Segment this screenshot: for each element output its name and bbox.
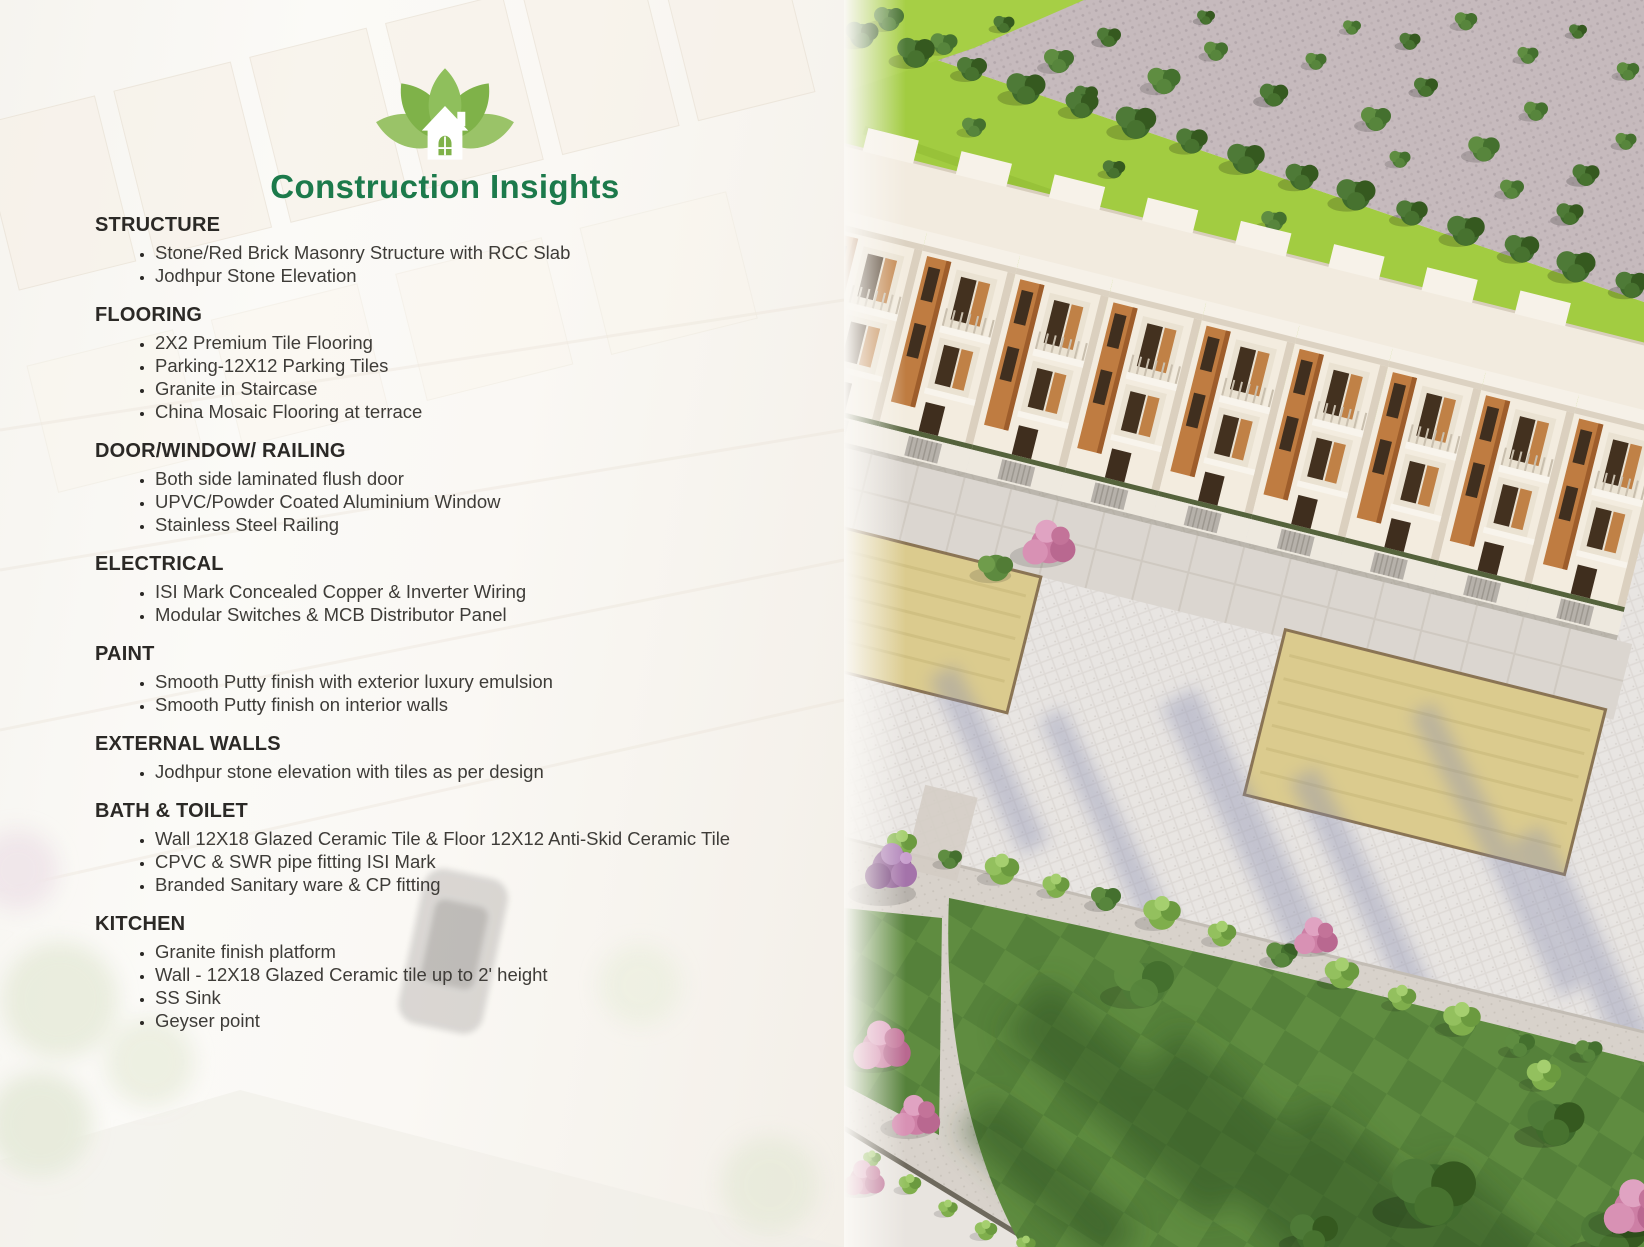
spec-item: Granite in Staircase [155, 377, 800, 400]
section-items: Stone/Red Brick Masonry Structure with R… [95, 241, 800, 287]
spec-item: Jodhpur Stone Elevation [155, 264, 800, 287]
spec-item: Granite finish platform [155, 940, 800, 963]
spec-section-kitchen: KITCHEN Granite finish platform Wall - 1… [95, 912, 800, 1032]
section-items: 2X2 Premium Tile Flooring Parking-12X12 … [95, 331, 800, 423]
specs-panel: Construction Insights STRUCTURE Stone/Re… [0, 0, 844, 1247]
leaf-house-logo-icon [347, 48, 543, 164]
spec-item: CPVC & SWR pipe fitting ISI Mark [155, 850, 800, 873]
spec-item: UPVC/Powder Coated Aluminium Window [155, 490, 800, 513]
section-title: PAINT [95, 642, 800, 666]
spec-item: Stainless Steel Railing [155, 513, 800, 536]
section-title: ELECTRICAL [95, 552, 800, 576]
section-items: Smooth Putty finish with exterior luxury… [95, 670, 800, 716]
section-items: Wall 12X18 Glazed Ceramic Tile & Floor 1… [95, 827, 800, 896]
section-items: Granite finish platform Wall - 12X18 Gla… [95, 940, 800, 1032]
spec-section-door-window-railing: DOOR/WINDOW/ RAILING Both side laminated… [95, 439, 800, 536]
brand-header: Construction Insights [130, 48, 760, 206]
spec-item: Stone/Red Brick Masonry Structure with R… [155, 241, 800, 264]
spec-item: Jodhpur stone elevation with tiles as pe… [155, 760, 800, 783]
spec-item: SS Sink [155, 986, 800, 1009]
spec-item: China Mosaic Flooring at terrace [155, 400, 800, 423]
spec-item: Wall 12X18 Glazed Ceramic Tile & Floor 1… [155, 827, 800, 850]
spec-section-flooring: FLOORING 2X2 Premium Tile Flooring Parki… [95, 303, 800, 423]
spec-section-external-walls: EXTERNAL WALLS Jodhpur stone elevation w… [95, 732, 800, 783]
spec-item: Both side laminated flush door [155, 467, 800, 490]
spec-section-paint: PAINT Smooth Putty finish with exterior … [95, 642, 800, 716]
section-title: EXTERNAL WALLS [95, 732, 800, 756]
brochure-page: Construction Insights STRUCTURE Stone/Re… [0, 0, 1644, 1247]
spec-item: Wall - 12X18 Glazed Ceramic tile up to 2… [155, 963, 800, 986]
section-title: FLOORING [95, 303, 800, 327]
site-render-photo [844, 0, 1644, 1247]
spec-sections: STRUCTURE Stone/Red Brick Masonry Struct… [95, 213, 800, 1048]
spec-section-bath-toilet: BATH & TOILET Wall 12X18 Glazed Ceramic … [95, 799, 800, 896]
aerial-render-illustration [844, 0, 1644, 1247]
photo-left-fade [844, 0, 906, 1247]
spec-item: Smooth Putty finish with exterior luxury… [155, 670, 800, 693]
section-title: BATH & TOILET [95, 799, 800, 823]
spec-item: Modular Switches & MCB Distributor Panel [155, 603, 800, 626]
section-items: Both side laminated flush door UPVC/Powd… [95, 467, 800, 536]
spec-item: 2X2 Premium Tile Flooring [155, 331, 800, 354]
spec-section-electrical: ELECTRICAL ISI Mark Concealed Copper & I… [95, 552, 800, 626]
spec-item: ISI Mark Concealed Copper & Inverter Wir… [155, 580, 800, 603]
section-title: STRUCTURE [95, 213, 800, 237]
faded-road [0, 1090, 844, 1247]
page-title: Construction Insights [130, 168, 760, 206]
section-title: DOOR/WINDOW/ RAILING [95, 439, 800, 463]
spec-item: Smooth Putty finish on interior walls [155, 693, 800, 716]
spec-item: Geyser point [155, 1009, 800, 1032]
faded-pink-tree [0, 830, 58, 910]
spec-item: Branded Sanitary ware & CP fitting [155, 873, 800, 896]
section-items: Jodhpur stone elevation with tiles as pe… [95, 760, 800, 783]
section-items: ISI Mark Concealed Copper & Inverter Wir… [95, 580, 800, 626]
section-title: KITCHEN [95, 912, 800, 936]
spec-section-structure: STRUCTURE Stone/Red Brick Masonry Struct… [95, 213, 800, 287]
spec-item: Parking-12X12 Parking Tiles [155, 354, 800, 377]
